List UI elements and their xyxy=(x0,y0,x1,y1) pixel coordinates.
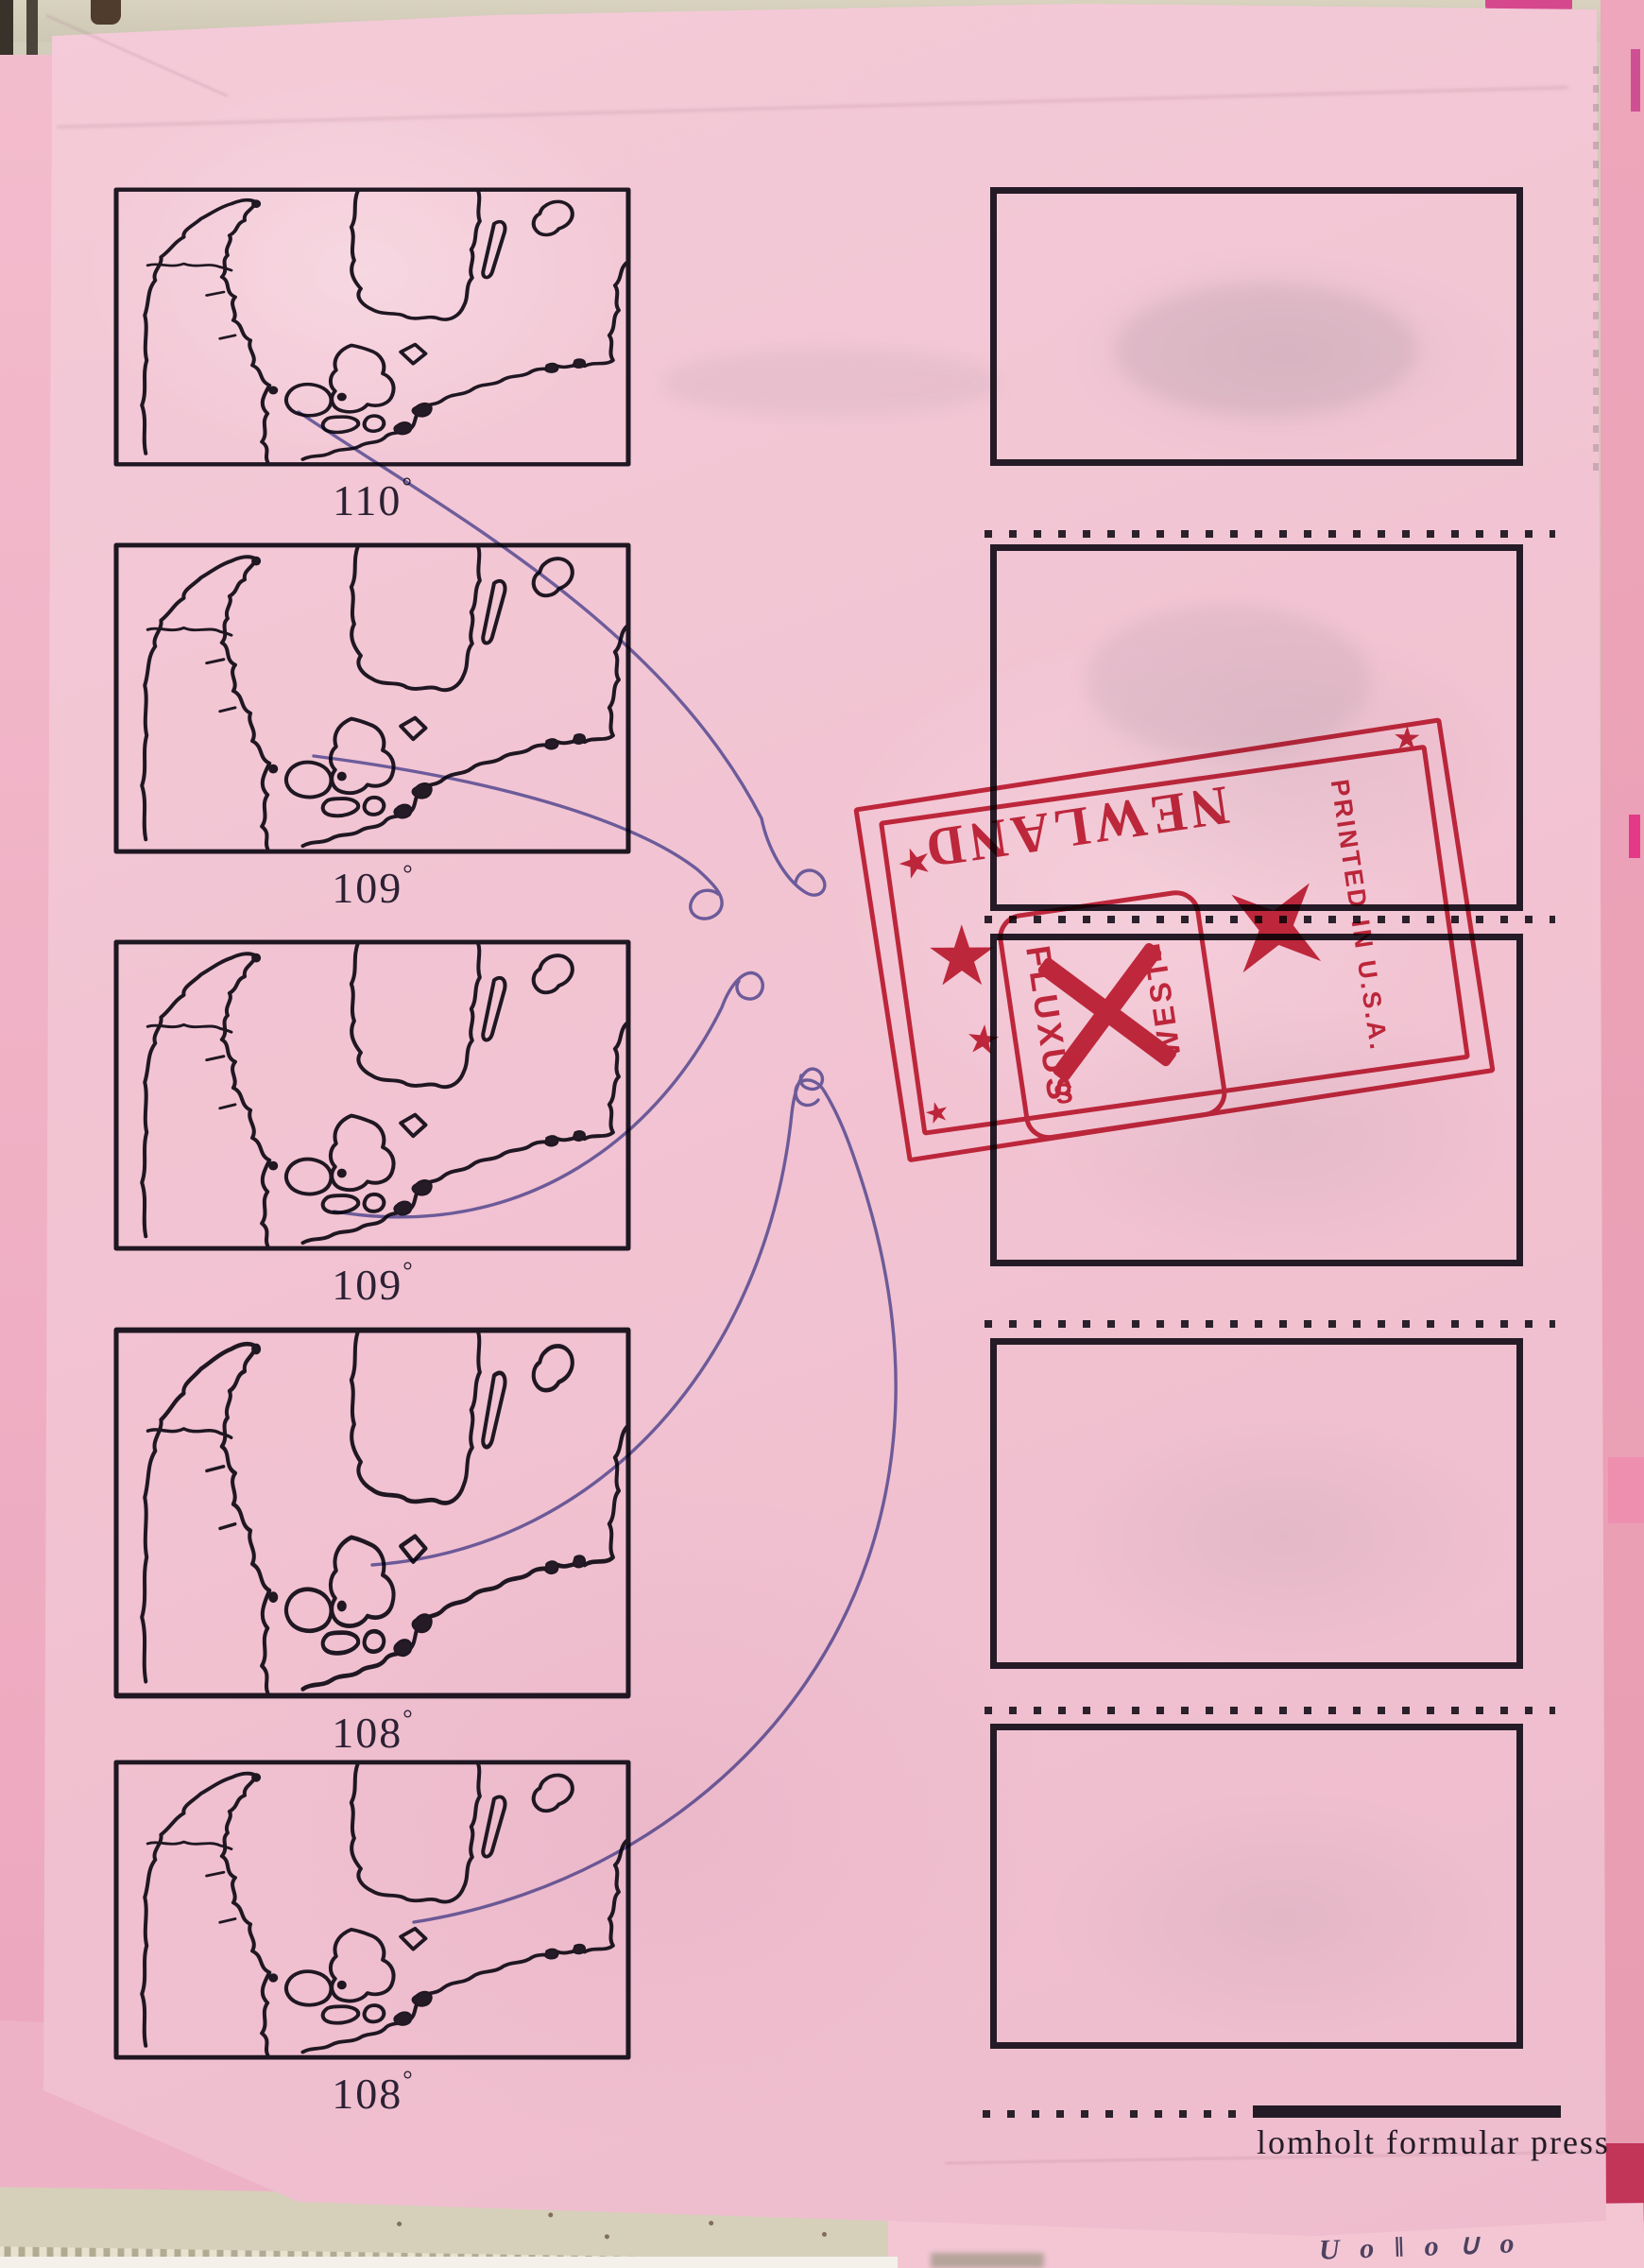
ink-smudge xyxy=(931,2253,1044,2268)
map-label: 110° xyxy=(278,472,467,525)
map-panel-5: 108° xyxy=(113,1760,631,2060)
denmark-map-drawing xyxy=(113,187,631,467)
white-paper-bottom xyxy=(0,2257,898,2268)
cutting-dots-row xyxy=(985,1707,1555,1714)
magenta-streak xyxy=(1631,49,1640,112)
empty-frame-4 xyxy=(990,1338,1523,1669)
paper-speck xyxy=(605,2234,609,2239)
map-panel-1: 110° xyxy=(113,187,631,467)
edge-marks xyxy=(1593,66,1599,482)
scanned-page: U o ‖ o ∪ o xyxy=(0,0,1644,2268)
map-panel-3: 109° xyxy=(113,939,631,1251)
denmark-map-drawing xyxy=(113,542,631,854)
under-sheet-left xyxy=(0,55,51,2219)
paper-speck xyxy=(709,2221,713,2225)
magenta-streak xyxy=(1629,815,1640,858)
map-panel-4: 108° xyxy=(113,1327,631,1699)
pink-patch xyxy=(1608,1457,1644,1523)
star-icon: ★ xyxy=(924,915,1000,999)
paper-speck xyxy=(397,2222,402,2226)
map-label: 108° xyxy=(278,2066,467,2119)
paper-speck xyxy=(548,2212,553,2217)
map-label: 109° xyxy=(278,1257,467,1310)
imprint-rule xyxy=(1253,2105,1561,2118)
paper-stain xyxy=(91,0,121,25)
map-panel-2: 109° xyxy=(113,542,631,854)
imprint-text: lomholt formular press xyxy=(1257,2122,1610,2162)
star-icon: ★ xyxy=(964,1019,1003,1061)
cutting-dots-row xyxy=(985,530,1555,538)
empty-frame-5 xyxy=(990,1724,1523,2049)
map-label: 108° xyxy=(278,1705,467,1758)
map-label: 109° xyxy=(278,860,467,913)
denmark-map-drawing xyxy=(113,1760,631,2060)
empty-frame-1 xyxy=(990,187,1523,466)
cutting-dots-row xyxy=(985,1320,1555,1328)
denmark-map-drawing xyxy=(113,1327,631,1699)
denmark-map-drawing xyxy=(113,939,631,1251)
under-sheet-right xyxy=(1601,0,1644,2268)
cutting-dots-row xyxy=(983,2110,1245,2118)
star-icon: ★ xyxy=(1392,722,1421,755)
showthrough-ghost xyxy=(661,350,1002,416)
paper-speck xyxy=(822,2232,827,2237)
fluxus-ticket: FLUXUS WEST S E xyxy=(995,887,1230,1143)
